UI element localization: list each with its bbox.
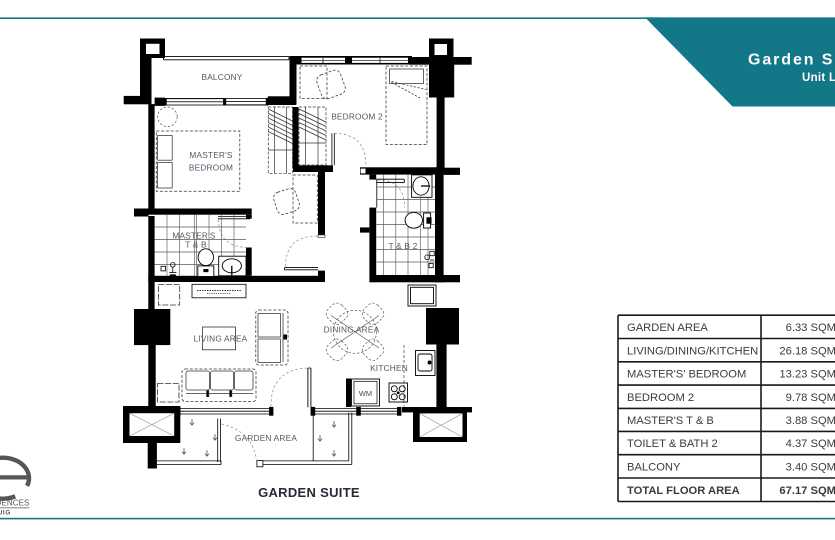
svg-text:3.88 SQM: 3.88 SQM xyxy=(786,415,835,427)
svg-text:WM: WM xyxy=(359,389,372,398)
svg-text:9.78 SQM: 9.78 SQM xyxy=(786,392,835,404)
svg-text:BEDROOM 2: BEDROOM 2 xyxy=(331,112,383,122)
svg-text:4.37 SQM: 4.37 SQM xyxy=(786,438,835,450)
svg-text:BALCONY: BALCONY xyxy=(201,72,242,82)
svg-text:Garden Suite: Garden Suite xyxy=(748,52,835,69)
svg-text:DINING AREA: DINING AREA xyxy=(324,325,380,335)
svg-text:6.33 SQM: 6.33 SQM xyxy=(786,322,835,334)
svg-text:MASTER'S T & B: MASTER'S T & B xyxy=(627,415,714,427)
svg-text:67.17 SQM: 67.17 SQM xyxy=(779,485,835,497)
svg-text:KITCHEN: KITCHEN xyxy=(370,363,408,373)
svg-text:BEDROOM 2: BEDROOM 2 xyxy=(627,392,694,404)
svg-text:GARDEN AREA: GARDEN AREA xyxy=(627,322,708,334)
svg-text:GARDEN SUITE: GARDEN SUITE xyxy=(258,485,360,500)
svg-text:BEDROOM: BEDROOM xyxy=(189,163,233,173)
svg-text:LIVING/DINING/KITCHEN: LIVING/DINING/KITCHEN xyxy=(627,345,758,357)
svg-text:TOTAL FLOOR AREA: TOTAL FLOOR AREA xyxy=(627,485,740,497)
svg-text:MASTER'S' BEDROOM: MASTER'S' BEDROOM xyxy=(627,369,746,381)
svg-text:3.40 SQM: 3.40 SQM xyxy=(786,462,835,474)
svg-text:GARDEN AREA: GARDEN AREA xyxy=(235,433,297,443)
svg-text:Unit Layout: Unit Layout xyxy=(802,72,835,84)
svg-text:LIVING AREA: LIVING AREA xyxy=(194,334,248,344)
svg-text:26.18 SQM: 26.18 SQM xyxy=(779,345,835,357)
svg-text:13.23 SQM: 13.23 SQM xyxy=(779,369,835,381)
svg-text:RESIDENCES: RESIDENCES xyxy=(0,499,30,508)
svg-text:BALCONY: BALCONY xyxy=(627,462,681,474)
svg-text:TOILET & BATH 2: TOILET & BATH 2 xyxy=(627,438,718,450)
svg-text:MASTER'S: MASTER'S xyxy=(189,150,233,160)
svg-text:T & B 2: T & B 2 xyxy=(389,241,418,251)
svg-text:TAGUIG: TAGUIG xyxy=(0,510,11,517)
svg-text:T & B: T & B xyxy=(185,240,207,250)
